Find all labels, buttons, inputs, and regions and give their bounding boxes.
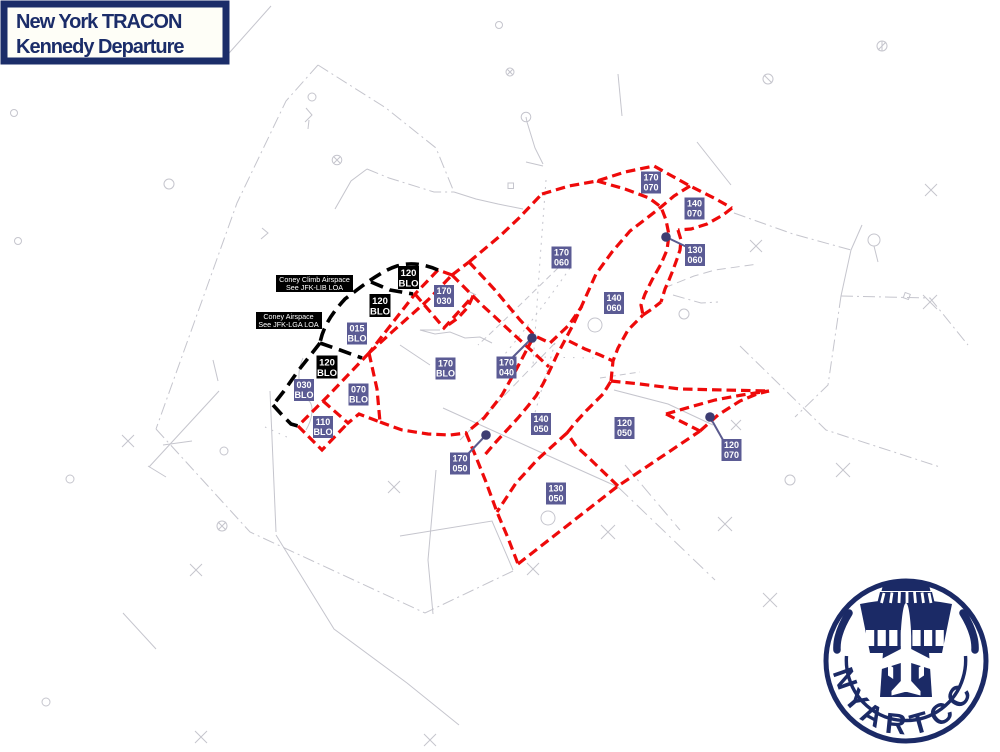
svg-text:140: 140 — [687, 199, 702, 209]
svg-text:015: 015 — [349, 324, 364, 334]
svg-text:BLO: BLO — [370, 307, 390, 318]
svg-text:050: 050 — [548, 494, 563, 504]
svg-text:060: 060 — [606, 303, 621, 313]
svg-text:040: 040 — [499, 368, 514, 378]
svg-text:BLO: BLO — [314, 427, 333, 437]
svg-text:120: 120 — [401, 268, 417, 279]
svg-text:BLO: BLO — [436, 369, 455, 379]
svg-text:060: 060 — [554, 258, 569, 268]
svg-text:070: 070 — [351, 385, 366, 395]
svg-text:130: 130 — [687, 245, 702, 255]
svg-text:110: 110 — [316, 417, 331, 427]
svg-text:050: 050 — [452, 464, 467, 474]
svg-text:140: 140 — [606, 293, 621, 303]
svg-text:070: 070 — [724, 450, 739, 460]
svg-text:170: 170 — [499, 358, 514, 368]
svg-text:070: 070 — [687, 209, 702, 219]
svg-text:170: 170 — [452, 454, 467, 464]
svg-text:170: 170 — [438, 359, 453, 369]
svg-text:BLO: BLO — [349, 395, 368, 405]
svg-text:050: 050 — [533, 424, 548, 434]
svg-text:170: 170 — [436, 286, 451, 296]
svg-text:170: 170 — [643, 173, 658, 183]
svg-text:130: 130 — [548, 484, 563, 494]
svg-text:BLO: BLO — [348, 334, 367, 344]
svg-text:120: 120 — [617, 418, 632, 428]
svg-text:120: 120 — [319, 358, 335, 369]
svg-text:030: 030 — [296, 380, 311, 390]
svg-text:BLO: BLO — [317, 368, 337, 379]
svg-text:See JFK-LGA LOA: See JFK-LGA LOA — [258, 320, 319, 329]
svg-text:070: 070 — [643, 183, 658, 193]
svg-text:120: 120 — [724, 440, 739, 450]
svg-text:030: 030 — [436, 296, 451, 306]
svg-text:See JFK-LIB LOA: See JFK-LIB LOA — [286, 283, 343, 292]
svg-text:170: 170 — [554, 248, 569, 258]
svg-text:New York TRACON: New York TRACON — [16, 11, 182, 33]
svg-text:BLO: BLO — [398, 279, 418, 290]
svg-text:060: 060 — [687, 255, 702, 265]
svg-text:120: 120 — [372, 296, 388, 307]
svg-text:140: 140 — [533, 414, 548, 424]
svg-text:BLO: BLO — [295, 390, 314, 400]
svg-text:Kennedy Departure: Kennedy Departure — [16, 36, 184, 58]
svg-text:050: 050 — [617, 428, 632, 438]
